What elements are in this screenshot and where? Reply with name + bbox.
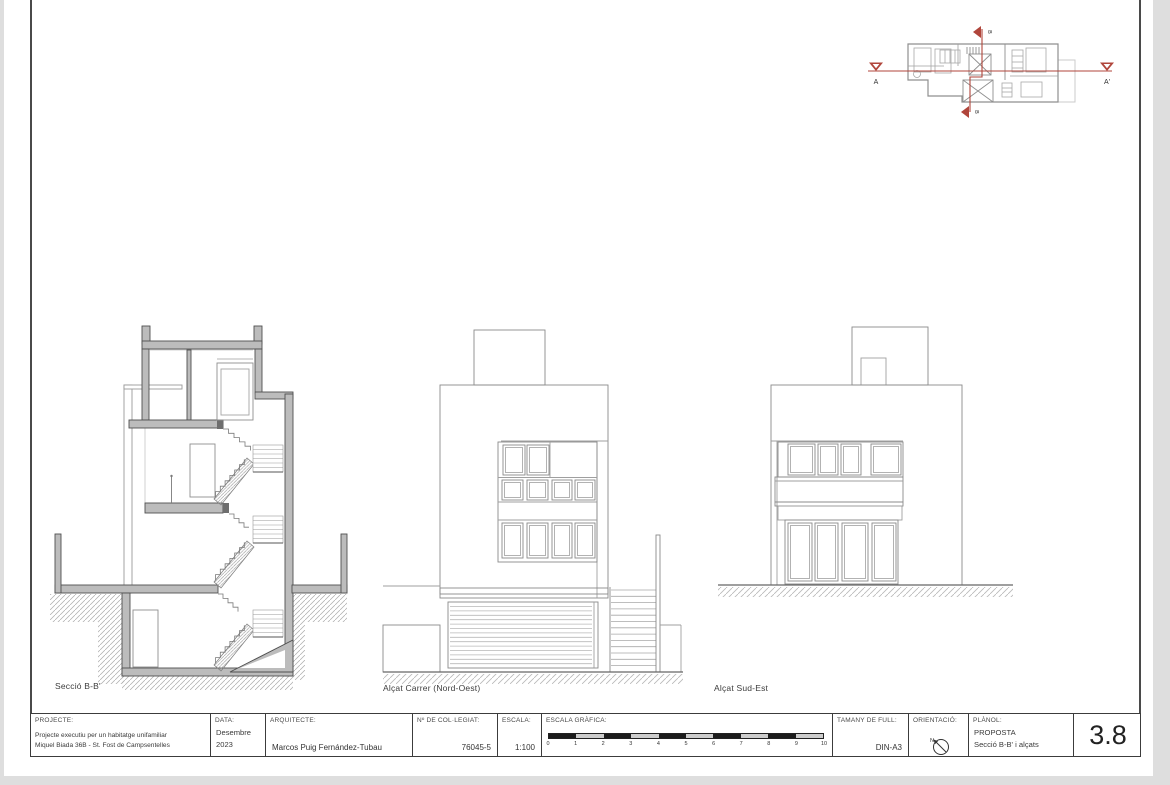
elevation-street-drawing (383, 330, 683, 684)
titleblock-data: DATA: Desembre 2023 (211, 714, 266, 756)
titleblock-escala-grafica: ESCALA GRÀFICA: 0 1 2 3 4 5 6 7 8 9 10 (542, 714, 833, 756)
projecte-label: PROJECTE: (35, 717, 73, 724)
scale-tick: 10 (821, 741, 827, 747)
elevation-se-caption: Alçat Sud-Est (714, 683, 768, 693)
escala-label: ESCALA: (502, 717, 531, 724)
planol-line1: PROPOSTA (974, 728, 1016, 737)
collegiat-label: Nº DE COL·LEGIAT: (417, 717, 479, 724)
titleblock-arquitecte: ARQUITECTE: Marcos Puig Fernández-Tubau (266, 714, 413, 756)
data-label: DATA: (215, 717, 234, 724)
planol-label: PLÀNOL: (973, 717, 1002, 724)
garage-door (448, 602, 598, 668)
scale-tick: 5 (684, 741, 687, 747)
drawings-canvas: A A' B B (0, 0, 1170, 785)
sheet-number: 3.8 (1074, 714, 1142, 756)
scale-tick: 1 (574, 741, 577, 747)
section-caption: Secció B-B' (55, 681, 101, 691)
scale-tick: 8 (767, 741, 770, 747)
key-plan: A A' B B (868, 26, 1114, 118)
north-arrow-icon: N (925, 734, 953, 756)
section-label-a-prime: A' (1104, 79, 1110, 86)
scale-tick: 3 (629, 741, 632, 747)
projecte-line1: Projecte executiu per un habitatge unifa… (35, 731, 170, 741)
street-windows (502, 445, 595, 558)
title-block: PROJECTE: Projecte executiu per un habit… (30, 713, 1141, 757)
tamany-value: DIN-A3 (876, 743, 902, 752)
section-label-b-bottom: B (973, 110, 979, 114)
elevation-street-caption: Alçat Carrer (Nord-Oest) (383, 683, 480, 693)
escala-grafica-label: ESCALA GRÀFICA: (546, 717, 607, 724)
titleblock-projecte: PROJECTE: Projecte executiu per un habit… (31, 714, 211, 756)
scale-tick: 6 (712, 741, 715, 747)
planol-line2: Secció B-B' i alçats (974, 740, 1039, 749)
scale-tick: 0 (546, 741, 549, 747)
data-year: 2023 (216, 740, 233, 749)
section-bb-drawing (50, 326, 347, 690)
data-month: Desembre (216, 728, 251, 737)
se-ground-glazing (788, 523, 896, 581)
scale-tick: 4 (657, 741, 660, 747)
escala-value: 1:100 (515, 743, 535, 752)
scale-tick: 2 (602, 741, 605, 747)
drawing-sheet-view: A A' B B (0, 0, 1170, 785)
titleblock-escala: ESCALA: 1:100 (498, 714, 542, 756)
se-upper-windows (788, 444, 901, 475)
elevation-se-drawing (718, 327, 1013, 597)
north-letter: N (930, 738, 934, 744)
scale-tick: 7 (740, 741, 743, 747)
projecte-line2: Miquel Biada 36B - St. Fost de Campsente… (35, 741, 170, 751)
side-gate (610, 535, 681, 672)
section-label-a: A (874, 79, 879, 86)
scale-tick: 9 (795, 741, 798, 747)
section-label-b-top: B (986, 30, 992, 34)
titleblock-planol: PLÀNOL: PROPOSTA Secció B-B' i alçats (969, 714, 1074, 756)
collegiat-value: 76045-5 (462, 743, 491, 752)
titleblock-collegiat: Nº DE COL·LEGIAT: 76045-5 (413, 714, 498, 756)
titleblock-tamany: TAMANY DE FULL: DIN-A3 (833, 714, 909, 756)
section-marker-b-bottom-icon (961, 106, 969, 118)
stair-flights (214, 429, 283, 671)
orientacio-label: ORIENTACIÓ: (913, 717, 957, 724)
titleblock-orientacio: ORIENTACIÓ: N (909, 714, 969, 756)
arquitecte-value: Marcos Puig Fernández-Tubau (272, 743, 382, 752)
graphic-scale-bar (548, 733, 824, 739)
tamany-label: TAMANY DE FULL: (837, 717, 897, 724)
titleblock-sheet-number: 3.8 (1074, 714, 1142, 756)
arquitecte-label: ARQUITECTE: (270, 717, 316, 724)
section-marker-b-top-icon (973, 26, 981, 38)
